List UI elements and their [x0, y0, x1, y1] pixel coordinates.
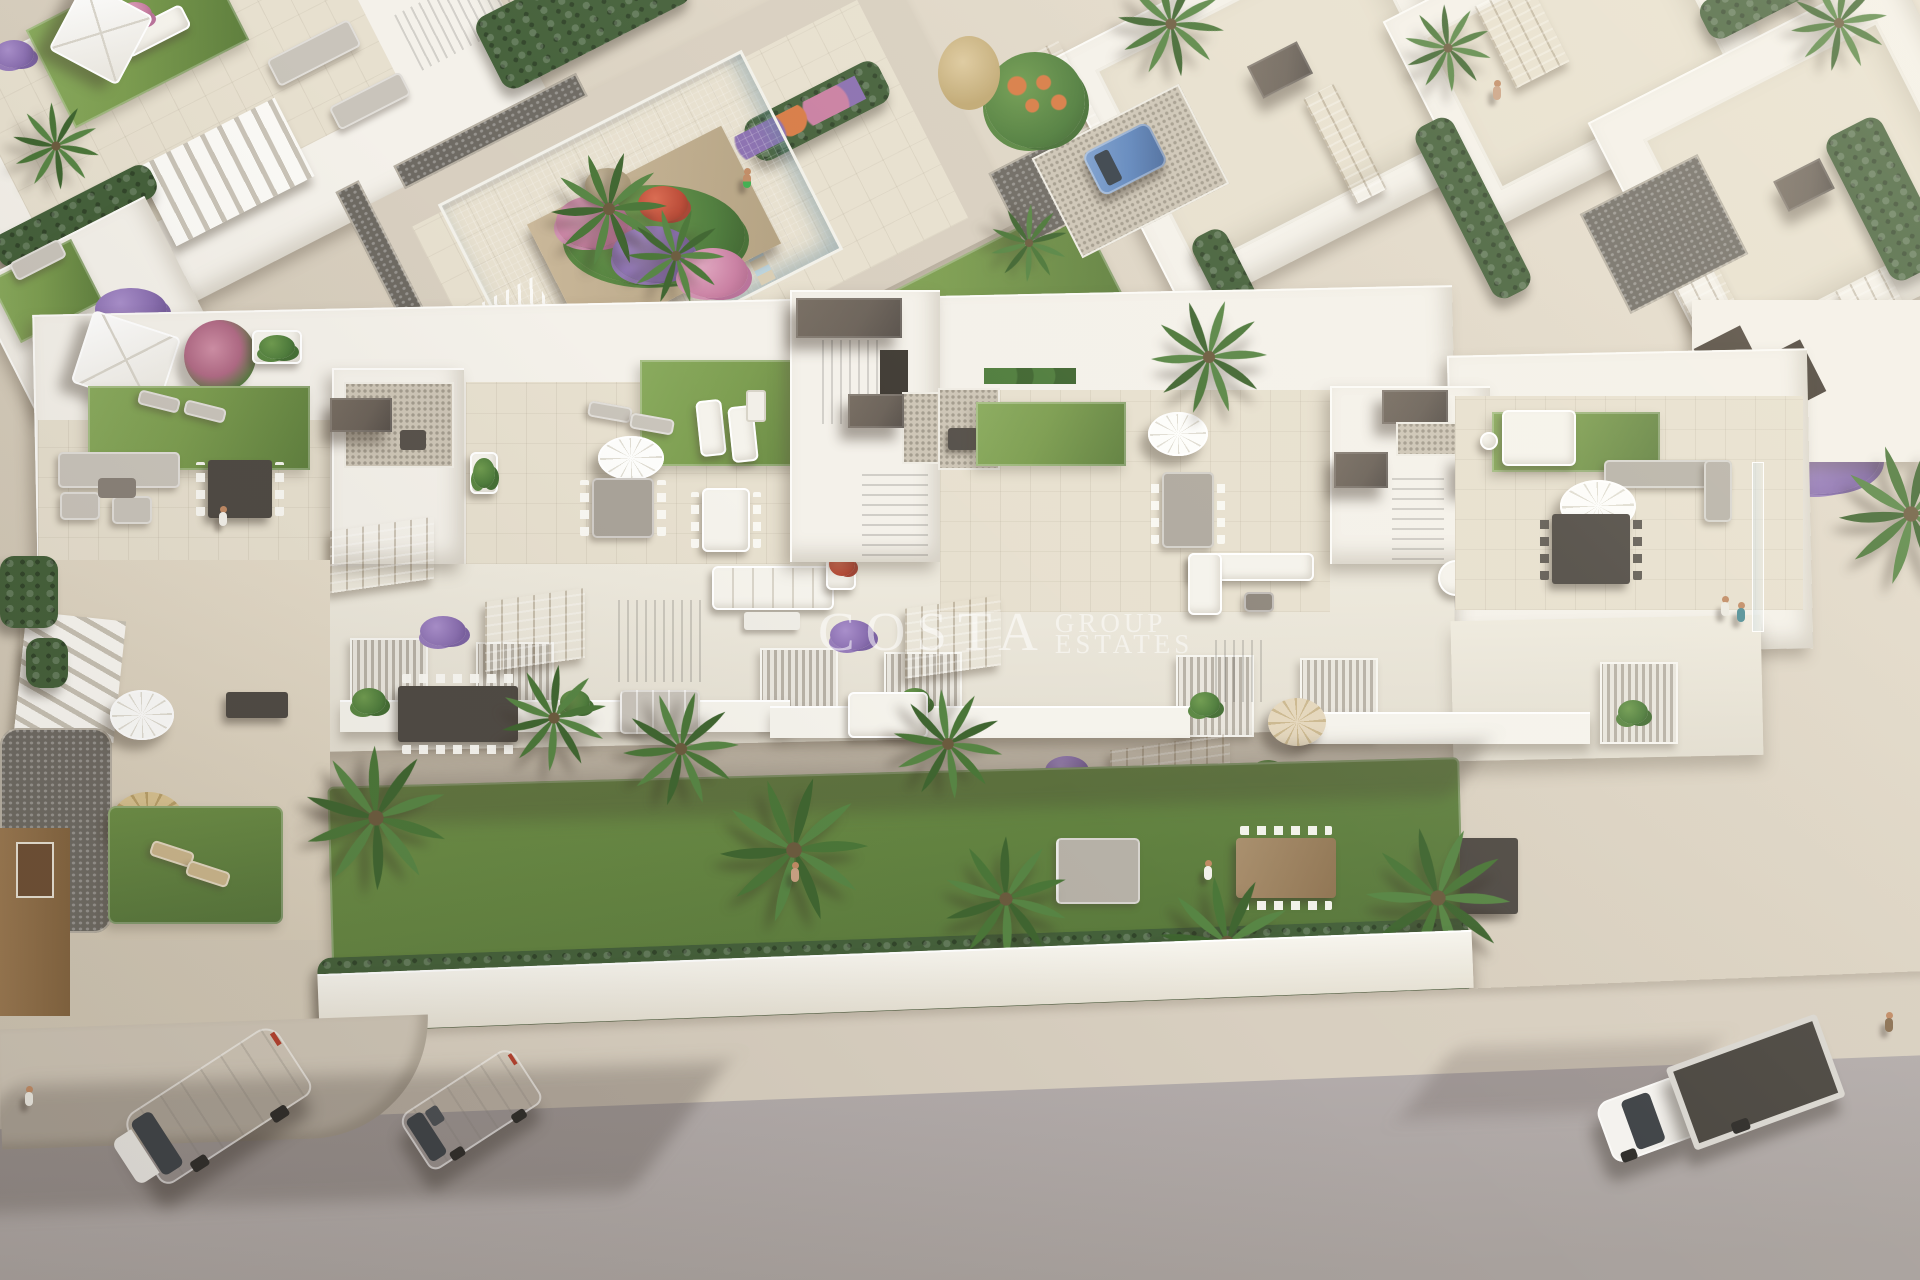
- small-van-tail-light: [508, 1053, 518, 1065]
- pickup-wheel: [1620, 1147, 1639, 1163]
- aerial-render-scene: COSTA GROUP ESTATES: [0, 0, 1920, 1280]
- person-on-road: [24, 1086, 34, 1108]
- pickup-windshield: [1620, 1091, 1666, 1150]
- street: [0, 0, 1920, 1280]
- person-on-sidewalk: [1884, 1012, 1894, 1034]
